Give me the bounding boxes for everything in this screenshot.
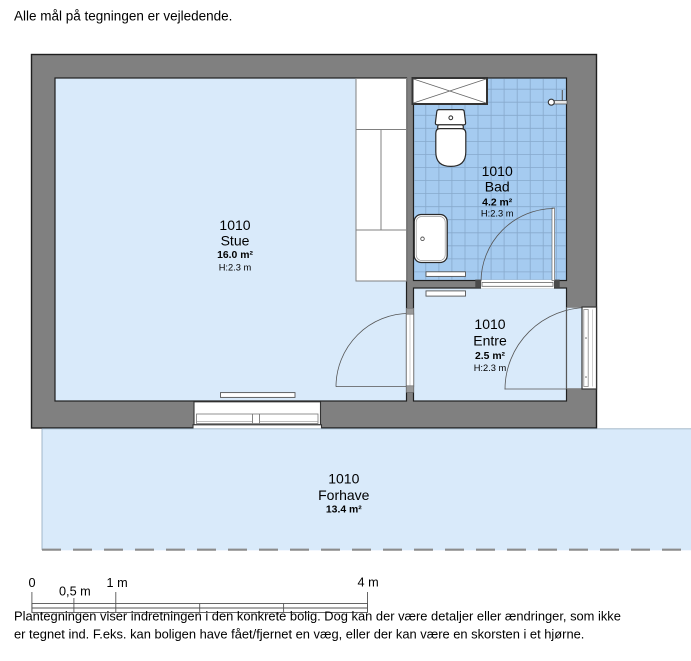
svg-text:4.2 m²: 4.2 m² (482, 197, 513, 208)
svg-text:4 m: 4 m (358, 576, 379, 590)
svg-text:16.0 m²: 16.0 m² (217, 250, 253, 261)
svg-text:1010: 1010 (328, 471, 359, 487)
svg-text:Stue: Stue (221, 233, 250, 249)
svg-text:0: 0 (29, 576, 36, 590)
svg-text:H:2.3 m: H:2.3 m (481, 208, 514, 218)
svg-text:er tegnet ind. F.eks. kan boli: er tegnet ind. F.eks. kan boligen have f… (14, 627, 584, 642)
svg-text:0,5 m: 0,5 m (59, 585, 91, 599)
svg-text:2.5 m²: 2.5 m² (475, 351, 506, 362)
svg-text:13.4 m²: 13.4 m² (326, 504, 362, 515)
svg-text:Entre: Entre (473, 332, 507, 348)
svg-text:Forhave: Forhave (318, 487, 370, 503)
svg-text:1010: 1010 (474, 316, 505, 332)
svg-text:Bad: Bad (485, 178, 510, 194)
svg-text:Plantegningen viser indretning: Plantegningen viser indretningen i den k… (14, 609, 621, 624)
svg-text:H:2.3 m: H:2.3 m (474, 363, 507, 373)
svg-text:1010: 1010 (482, 163, 513, 179)
svg-text:1010: 1010 (219, 217, 250, 233)
svg-text:1 m: 1 m (107, 576, 128, 590)
svg-text:Alle mål på tegningen er vejle: Alle mål på tegningen er vejledende. (14, 9, 232, 24)
svg-text:H:2.3 m: H:2.3 m (219, 262, 252, 272)
